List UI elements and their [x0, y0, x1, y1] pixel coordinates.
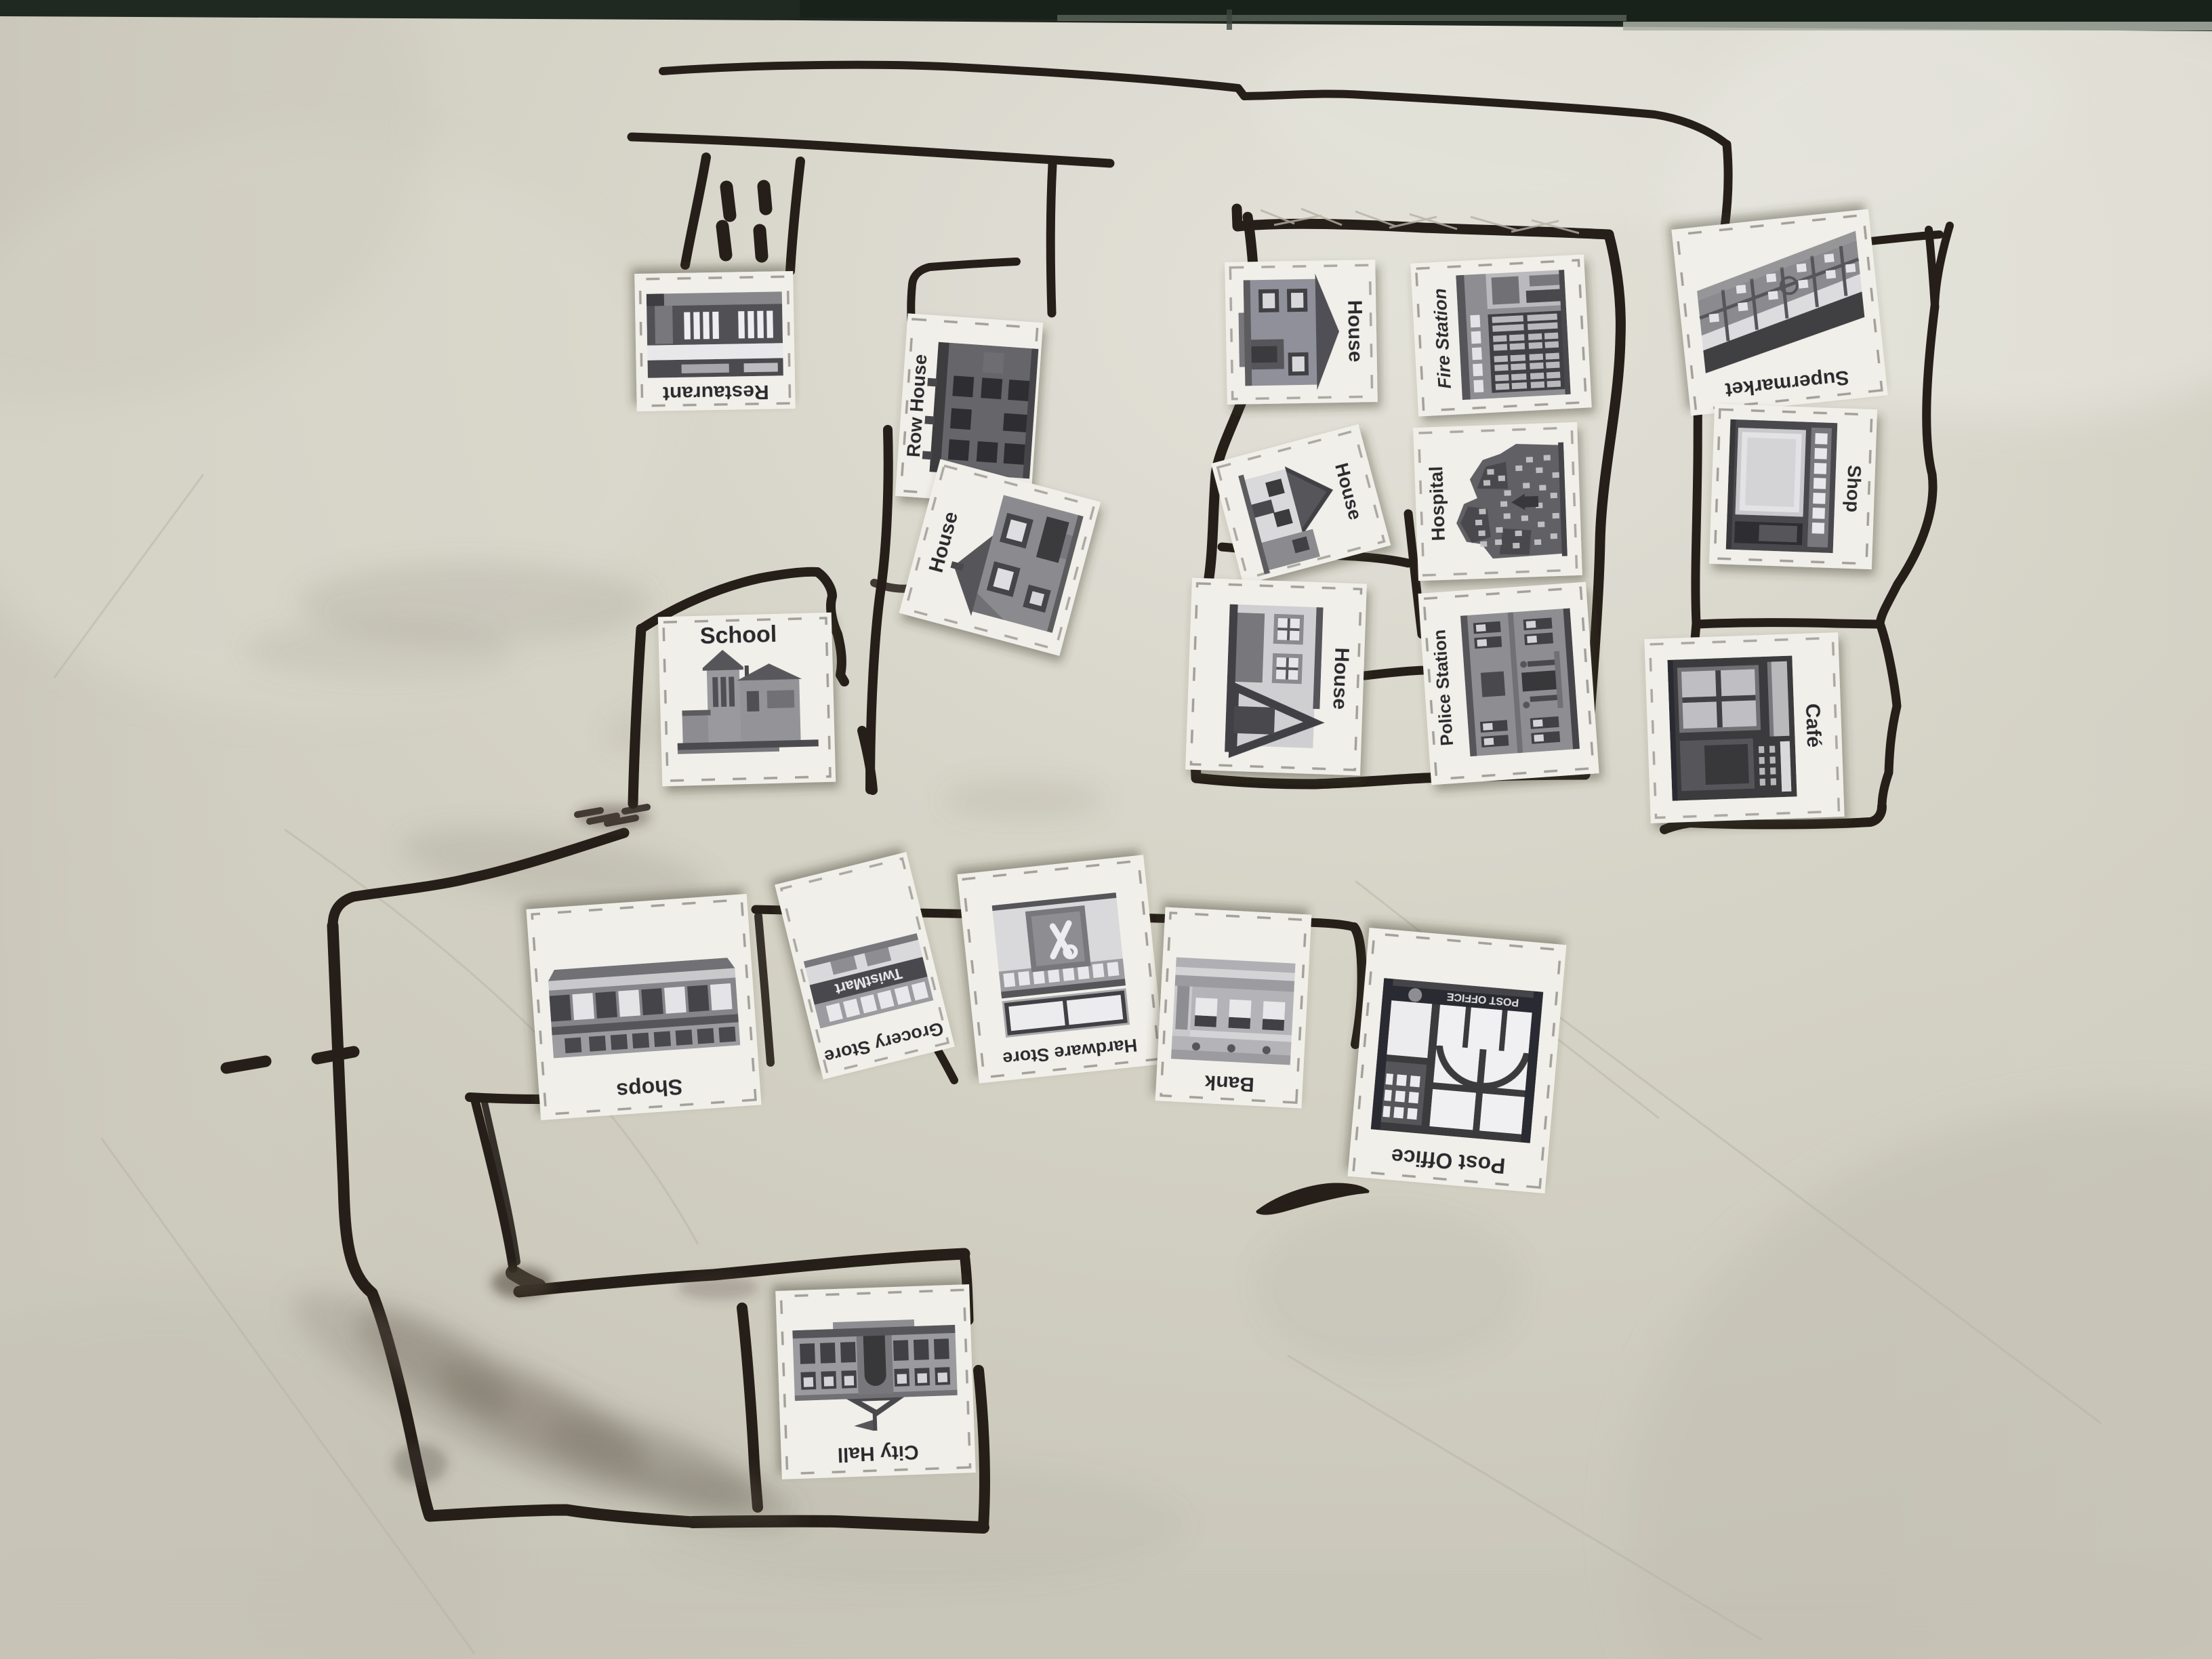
svg-text:Bank: Bank	[1204, 1071, 1254, 1096]
svg-text:School: School	[699, 621, 777, 649]
svg-text:City Hall: City Hall	[837, 1441, 919, 1466]
svg-text:House: House	[1328, 647, 1353, 710]
svg-text:Hospital: Hospital	[1425, 466, 1449, 541]
svg-text:Restaurant: Restaurant	[663, 381, 769, 405]
svg-text:House: House	[1343, 300, 1367, 362]
svg-text:Café: Café	[1801, 703, 1825, 747]
svg-text:Shop: Shop	[1843, 465, 1865, 513]
svg-text:Shops: Shops	[615, 1074, 683, 1103]
